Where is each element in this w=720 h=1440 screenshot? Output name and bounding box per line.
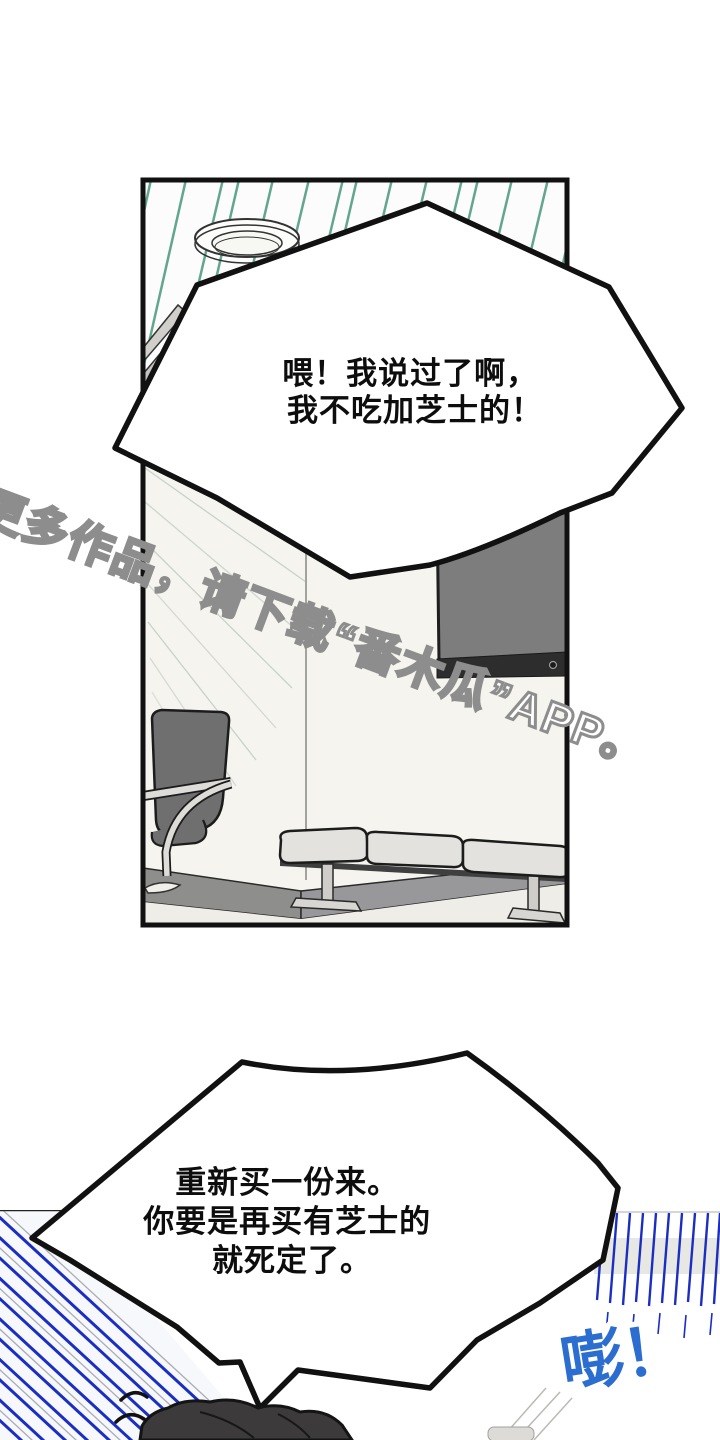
bubble-top-line1: 喂！我说过了啊， [282, 356, 538, 391]
bubble-top-line2: 我不吃加芝士的！ [287, 393, 543, 428]
comic-page: { "scene": { "kind": "webtoon-comic-page… [0, 0, 720, 1440]
